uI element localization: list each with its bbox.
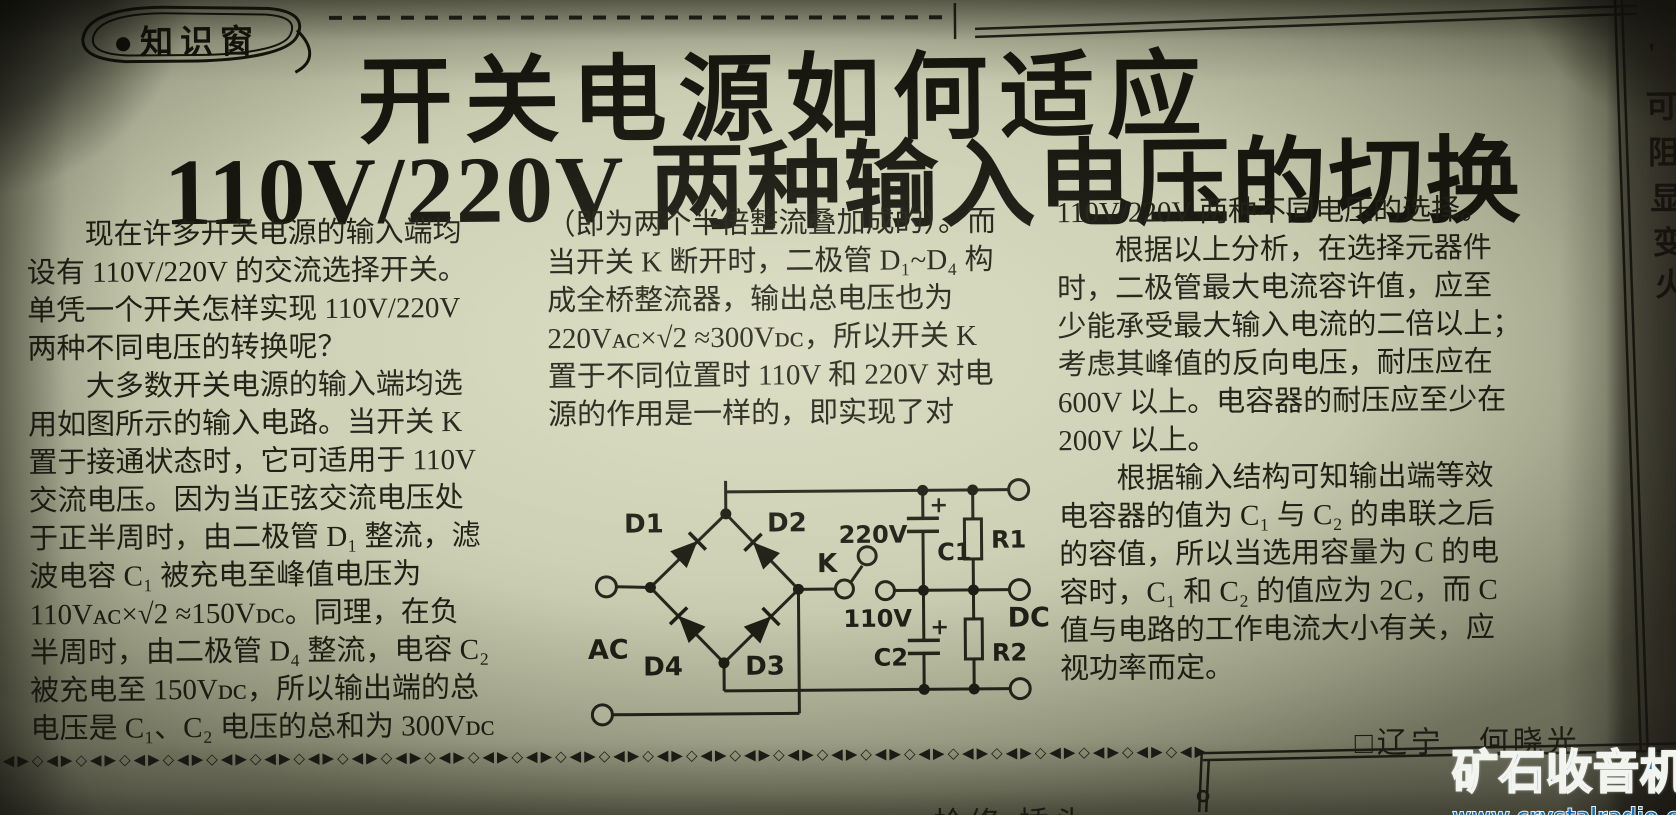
watermark-title: 矿石收音机 [1452,736,1676,802]
body-line: 置于不同位置时 110V 和 220V 对电 [548,354,1048,396]
body-line: 200V 以上。 [1058,418,1618,460]
dc-output-terminal-top [1009,480,1029,500]
body-line: 容时，C₁ 和 C₂ 的值应为 2C，而 C [1059,570,1619,612]
side-char: ' [1647,36,1656,73]
cutoff-bottom-text: 抢修 插头 [933,797,1091,815]
c1-plus-mark [932,498,946,512]
article-column-1: 现在许多开关电源的输入端均 设有 110V/220V 的交流选择开关。 单凭一个… [26,212,545,748]
body-line: 于正半周时，由二极管 D₁ 整流，滤 [29,516,544,558]
body-line: 置于接通状态时，它可适用于 110V [28,440,543,482]
label-c1: C1 [937,538,972,566]
body-line: 用如图所示的输入电路。当开关 K [28,402,543,444]
side-char: 火 [1655,259,1676,305]
body-line: 少能承受最大输入电流的二倍以上； [1057,304,1617,346]
label-220v: 220V [839,520,908,549]
label-110v: 110V [843,604,912,633]
body-line: 视功率而定。 [1060,646,1620,688]
label-r2: R2 [992,639,1027,667]
label-d4: D4 [643,652,683,682]
knowledge-window-badge: ●知识窗 [113,15,260,64]
body-line: 波电容 C₁ 被充电至峰值电压为 [29,554,544,596]
body-line: 两种不同电压的转换呢？ [27,326,542,368]
badge-label: ●知识窗 [113,25,260,62]
body-line: 根据输入结构可知输出端等效 [1058,456,1618,498]
switch-common-contact [835,580,853,598]
body-line: 110V/220V 两种不同电压的选择。 [1056,190,1616,232]
side-char: 可 [1645,81,1676,127]
capacitor-c1-symbol [907,518,939,531]
label-d2: D2 [767,508,807,538]
body-line: 电容器的值为 C₁ 与 C₂ 的串联之后 [1059,494,1619,536]
side-char: 显 [1650,173,1676,219]
body-line: 半周时，由二极管 D₄ 整流，电容 C₂ [30,630,545,672]
article-column-3: 110V/220V 两种不同电压的选择。 根据以上分析，在选择元器件 时，二极管… [1056,190,1620,688]
side-char: 阻 [1648,127,1676,173]
resistor-r2-symbol [965,619,982,659]
body-line: 源的作用是一样的，即实现了对 [548,392,1048,434]
dc-output-terminal-bottom [1010,678,1030,698]
dc-output-terminal-mid [1009,580,1029,600]
body-line: 大多数开关电源的输入端均选 [28,364,543,406]
switch-arm [850,566,862,583]
ac-input-terminal-top [596,577,616,597]
page-content: ●知识窗 开关电源如何适应 110V/220V 两种输入电压的切换 现在许多开关… [0,0,1676,815]
body-line: 交流电压。因为当正弦交流电压处 [29,478,544,520]
capacitor-c2-symbol [908,640,940,653]
label-d3: D3 [745,651,785,681]
body-line: 的容值，所以当选用容量为 C 的电 [1059,532,1619,574]
article-column-2: （即为两个半倍整流叠加成的）。而 当开关 K 断开时，二极管 D₁~D₄ 构 成… [546,202,1048,434]
ac-input-terminal-bottom [592,705,612,725]
body-line: （即为两个半倍整流叠加成的）。而 [546,202,1046,244]
site-watermark: 矿石收音机 www.crystalradio.cn [1452,736,1676,815]
body-line: 值与电路的工作电流大小有关，应 [1060,608,1620,650]
label-dc: DC [1008,602,1050,633]
body-line: 被充电至 150Vᴅᴄ，所以输出端的总 [30,668,545,710]
body-line: 单凭一个开关怎样实现 110V/220V [27,288,542,330]
body-line: 600V 以上。电容器的耐压应至少在 [1058,380,1618,422]
label-ac: AC [588,635,629,666]
body-line: 当开关 K 断开时，二极管 D₁~D₄ 构 [547,240,1047,282]
newspaper-photo: ●知识窗 开关电源如何适应 110V/220V 两种输入电压的切换 现在许多开关… [0,0,1676,815]
label-d1: D1 [624,509,664,539]
circuit-diagram: D1 D2 D4 D3 K 220V 110V C1 C2 R1 R2 AC D… [552,446,1054,750]
body-line: 考虑其峰值的反向电压，耐压应在 [1058,342,1618,384]
label-r1: R1 [991,526,1026,554]
body-line: 时，二极管最大电流容许值，应至 [1057,266,1617,308]
body-line: 220Vᴀᴄ×√2 ≈300Vᴅᴄ，所以开关 K [547,316,1047,358]
watermark-url: www.crystalradio.cn [1452,804,1676,815]
label-k: K [817,549,838,579]
side-char: 变 [1653,217,1676,263]
body-line: 现在许多开关电源的输入端均 [26,212,541,254]
switch-220v-contact [858,547,876,565]
body-line: 设有 110V/220V 的交流选择开关。 [27,250,542,292]
body-line: 110Vᴀᴄ×√2 ≈150Vᴅᴄ。同理，在负 [29,592,544,634]
switch-110v-contact [876,582,894,600]
body-line: 电压是 C₁、C₂ 电压的总和为 300Vᴅᴄ [30,706,545,748]
body-line: 成全桥整流器，输出总电压也为 [547,278,1047,320]
c2-plus-mark [933,620,947,634]
body-line: 根据以上分析，在选择元器件 [1057,228,1617,270]
label-c2: C2 [874,643,909,671]
dashed-top-rule [329,15,949,20]
